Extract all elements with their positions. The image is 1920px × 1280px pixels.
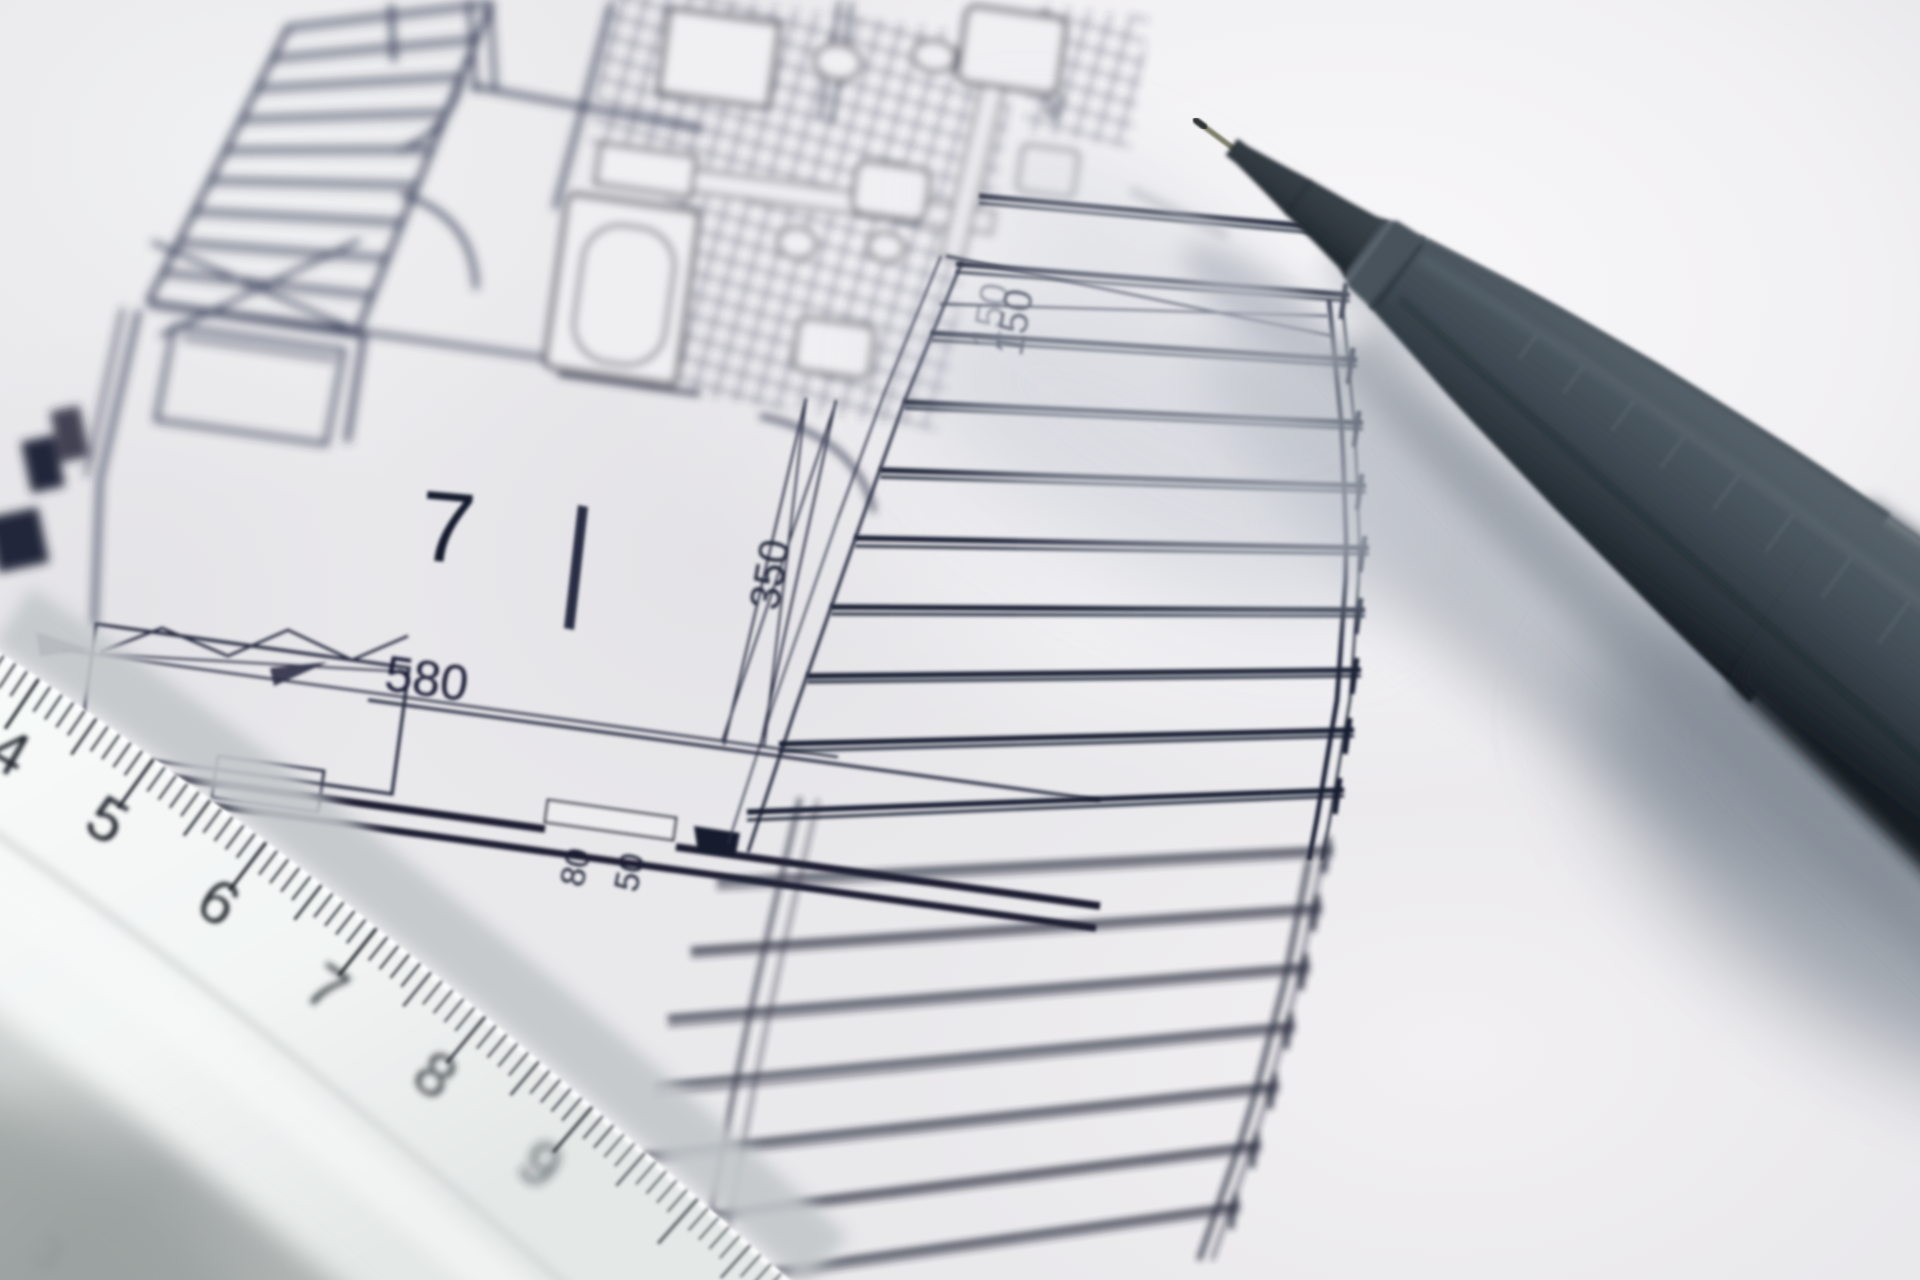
svg-text:7: 7 bbox=[415, 470, 480, 586]
svg-text:580: 580 bbox=[382, 645, 472, 712]
svg-text:40: 40 bbox=[1036, 89, 1071, 123]
svg-text:50: 50 bbox=[607, 850, 652, 895]
svg-text:80: 80 bbox=[553, 845, 598, 890]
